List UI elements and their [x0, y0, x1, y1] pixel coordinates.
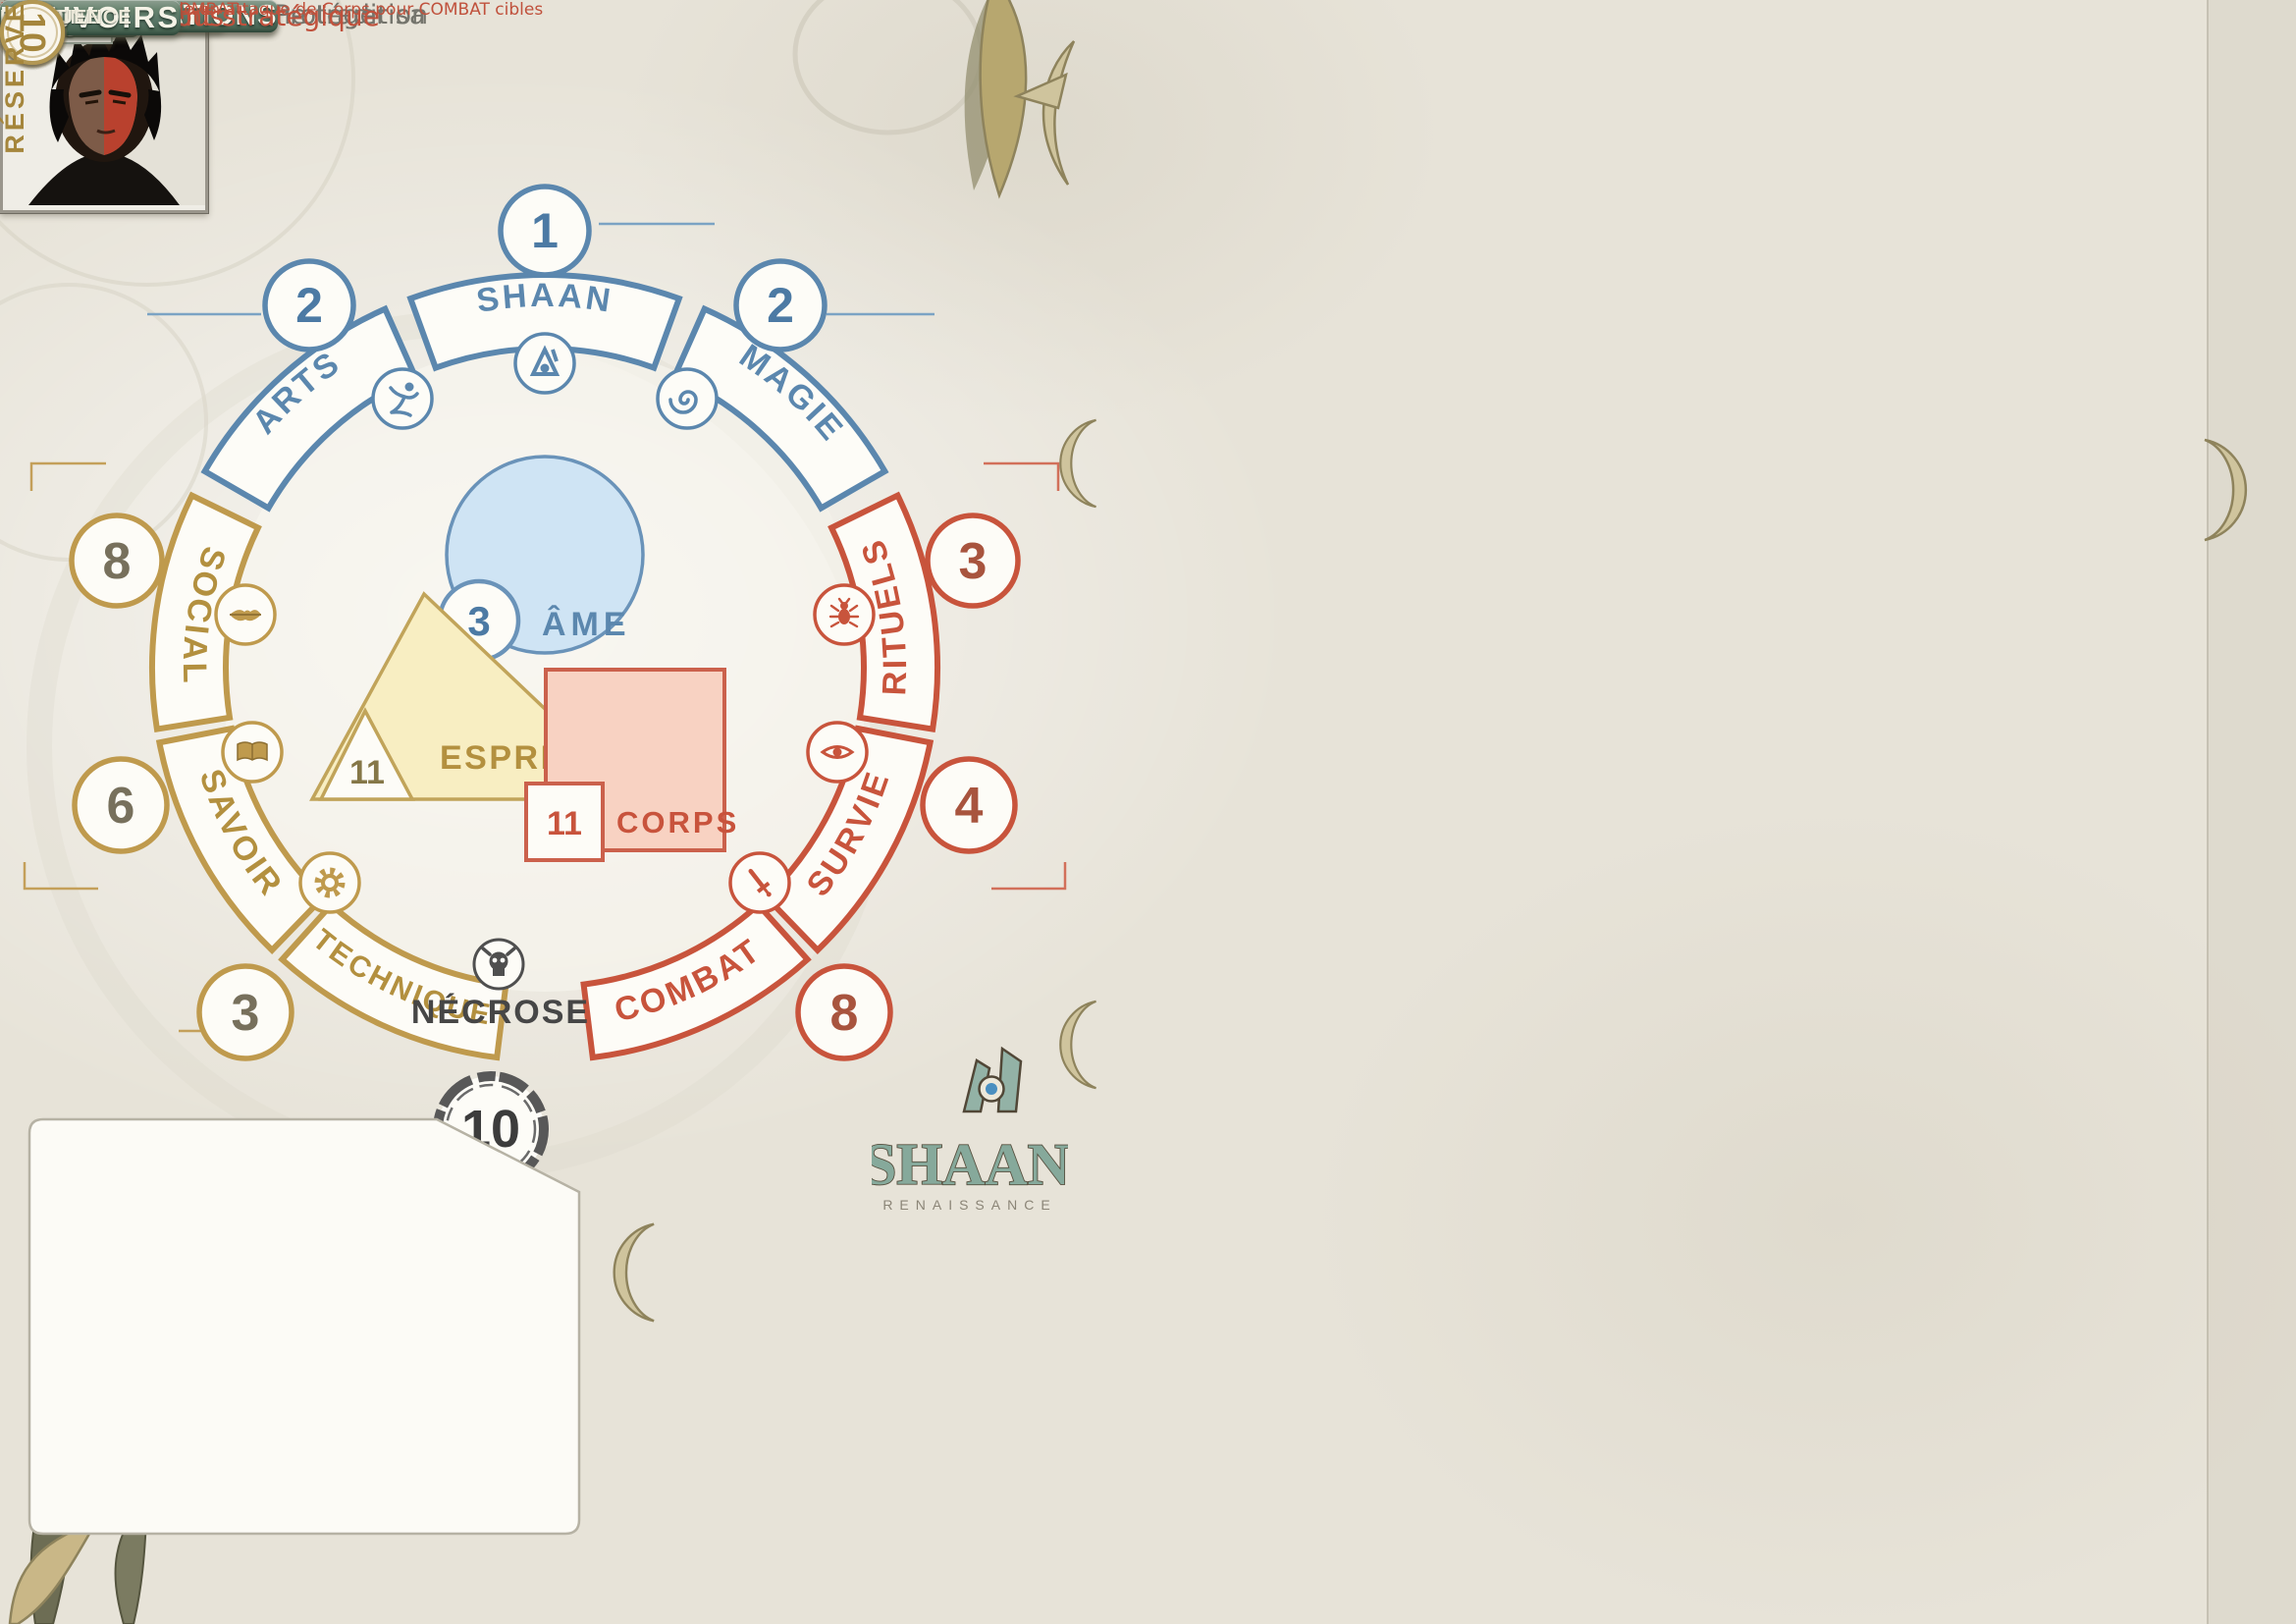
rituels-value: 3 — [959, 533, 988, 590]
arts-value-circle[interactable]: 2 — [265, 261, 353, 350]
shaan-value-circle[interactable]: 1 — [501, 187, 589, 275]
corps-value: 11 — [547, 805, 582, 842]
magie-icon — [658, 369, 717, 428]
ame-label: ÂME — [542, 606, 631, 643]
svg-text:SHAAN: SHAAN — [474, 277, 615, 320]
crescent-icon — [1048, 414, 1099, 513]
social-icon — [216, 585, 275, 644]
identity-panel-shape — [20, 1108, 609, 1559]
rituels-value-circle[interactable]: 3 — [928, 515, 1018, 606]
arts-value: 2 — [295, 278, 323, 333]
magie-value-circle[interactable]: 2 — [736, 261, 825, 350]
shaan-logo: SHAAN RENAISSANCE — [872, 1039, 1068, 1225]
technique-value-circle[interactable]: 3 — [199, 966, 292, 1058]
survie-icon — [808, 723, 867, 782]
magie-value: 2 — [767, 278, 794, 333]
shaan-icon — [515, 334, 574, 393]
savoir-value-circle[interactable]: 6 — [75, 759, 167, 851]
savoir-value: 6 — [107, 778, 135, 835]
necrose-label: NÉCROSE — [411, 994, 590, 1031]
rituels-icon — [815, 585, 874, 644]
logo-subtitle: RENAISSANCE — [882, 1197, 1056, 1213]
social-value: 8 — [103, 533, 132, 590]
technique-value: 3 — [232, 985, 260, 1042]
shaan-value: 1 — [531, 203, 559, 258]
reserve-label: RÉSERVE — [0, 0, 30, 154]
character-sheet: { "header": { "nom_label": "NOM :", "nom… — [0, 0, 2296, 1624]
social-value-circle[interactable]: 8 — [72, 515, 162, 606]
necrose-icon — [474, 940, 523, 989]
corps-label: CORPS — [616, 805, 739, 839]
shaan-arc-label: SHAAN — [474, 277, 615, 320]
corps-shape: 11 CORPS — [526, 670, 739, 860]
combat-value: 8 — [830, 985, 859, 1042]
technique-icon — [300, 853, 359, 912]
logo-title: SHAAN — [872, 1132, 1068, 1197]
crescent-decoration-right-edge — [2201, 436, 2260, 544]
esprit-value: 11 — [349, 754, 385, 791]
crescent-icon — [601, 1219, 658, 1326]
survie-value: 4 — [955, 778, 984, 835]
savoir-icon — [223, 723, 282, 782]
arrow-decoration-icon — [1009, 35, 1078, 190]
survie-value-circle[interactable]: 4 — [923, 759, 1015, 851]
arts-icon — [373, 369, 432, 428]
crescent-icon — [1048, 996, 1099, 1094]
